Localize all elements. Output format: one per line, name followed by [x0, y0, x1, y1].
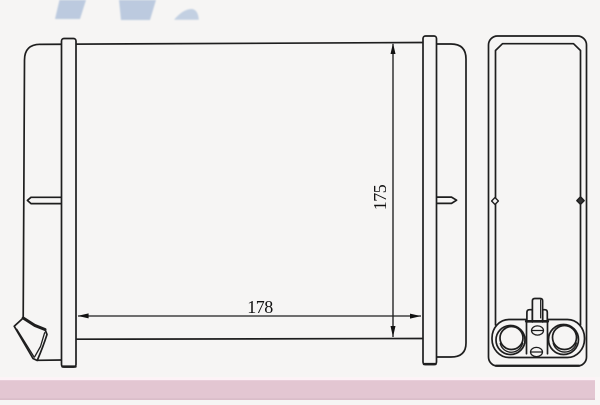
svg-text:178: 178 — [247, 297, 273, 317]
svg-text:175: 175 — [370, 184, 390, 210]
